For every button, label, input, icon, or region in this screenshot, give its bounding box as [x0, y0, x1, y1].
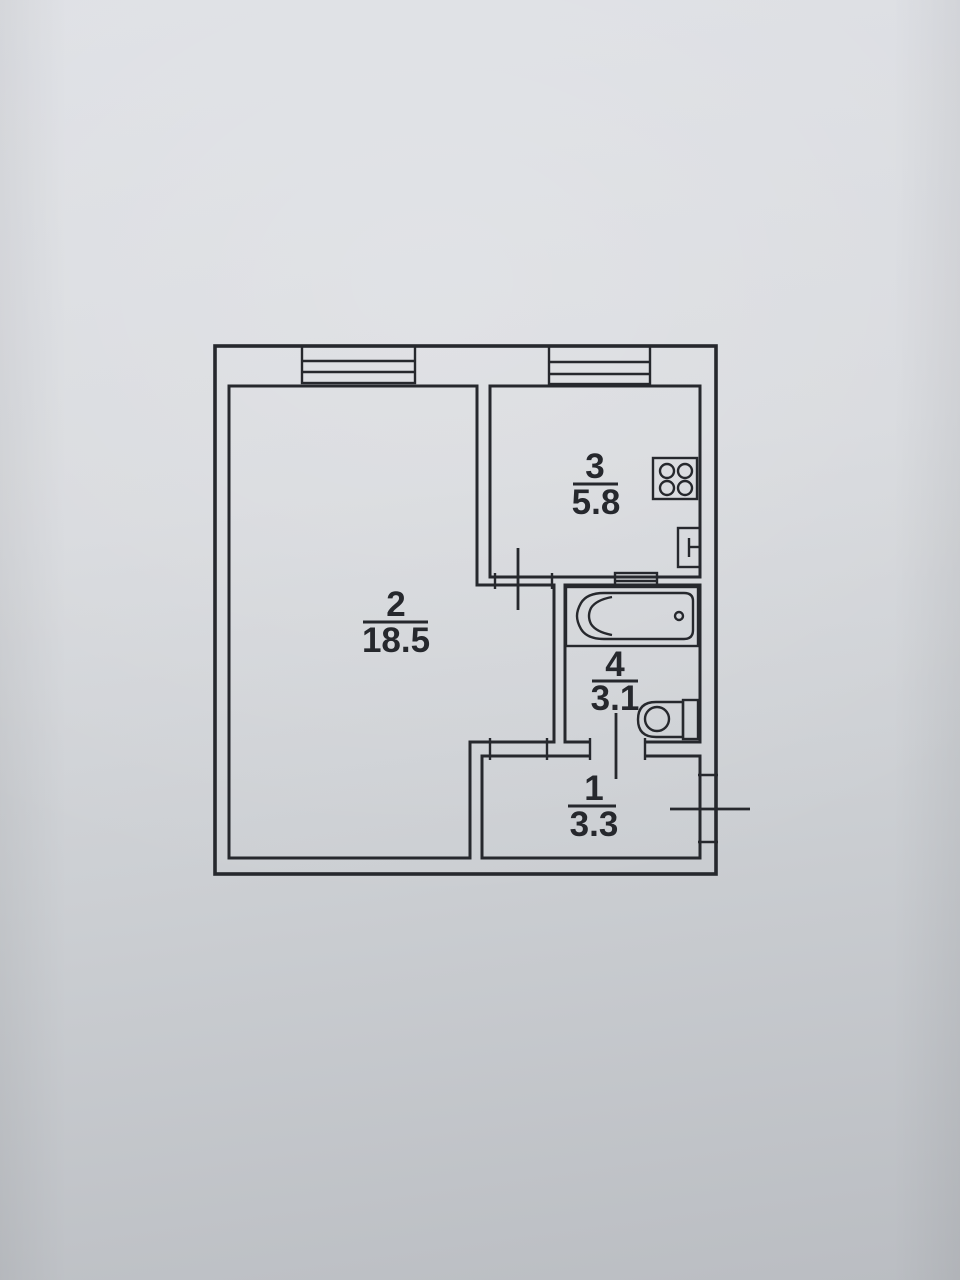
- toilet-icon: [638, 700, 698, 739]
- bathtub-outer: [566, 587, 698, 646]
- bathtub-head-curve: [589, 597, 612, 635]
- photo-background: 2 18.5 3 5.8 4 3.1 1 3.3: [0, 0, 960, 1280]
- vent-frame: [615, 573, 657, 585]
- window-icon: [302, 346, 415, 383]
- room-number: 2: [386, 585, 405, 624]
- room-number: 1: [584, 769, 603, 808]
- room-label-hallway: 1 3.3: [568, 769, 618, 844]
- room-area: 3.3: [570, 805, 619, 844]
- room-label-living: 2 18.5: [362, 585, 430, 660]
- outer-wall: [215, 346, 716, 874]
- vent-icon: [615, 573, 657, 585]
- stove-icon: [653, 458, 697, 499]
- sink-icon: [678, 528, 700, 567]
- window-frame: [549, 346, 650, 384]
- burner: [660, 481, 674, 495]
- room-area: 5.8: [572, 483, 621, 522]
- room-area: 3.1: [591, 679, 640, 718]
- kitchen-door: [495, 548, 552, 610]
- burner: [678, 481, 692, 495]
- burner: [678, 464, 692, 478]
- window-frame: [302, 346, 415, 383]
- room-label-bathroom: 4 3.1: [591, 645, 640, 718]
- bathroom-walls: [565, 585, 700, 742]
- floor-plan-drawing: 2 18.5 3 5.8 4 3.1 1 3.3: [0, 0, 960, 1280]
- entrance-door: [670, 775, 750, 842]
- burner: [660, 464, 674, 478]
- room-number: 3: [585, 447, 604, 486]
- outer-wall-rect: [215, 346, 716, 874]
- window-icon: [549, 346, 650, 384]
- bathtub-drain: [675, 612, 683, 620]
- room-label-kitchen: 3 5.8: [572, 447, 621, 522]
- toilet-tank: [683, 700, 698, 739]
- room-area: 18.5: [362, 621, 430, 660]
- toilet-bowl-circle: [645, 707, 669, 731]
- bathtub-icon: [566, 587, 698, 646]
